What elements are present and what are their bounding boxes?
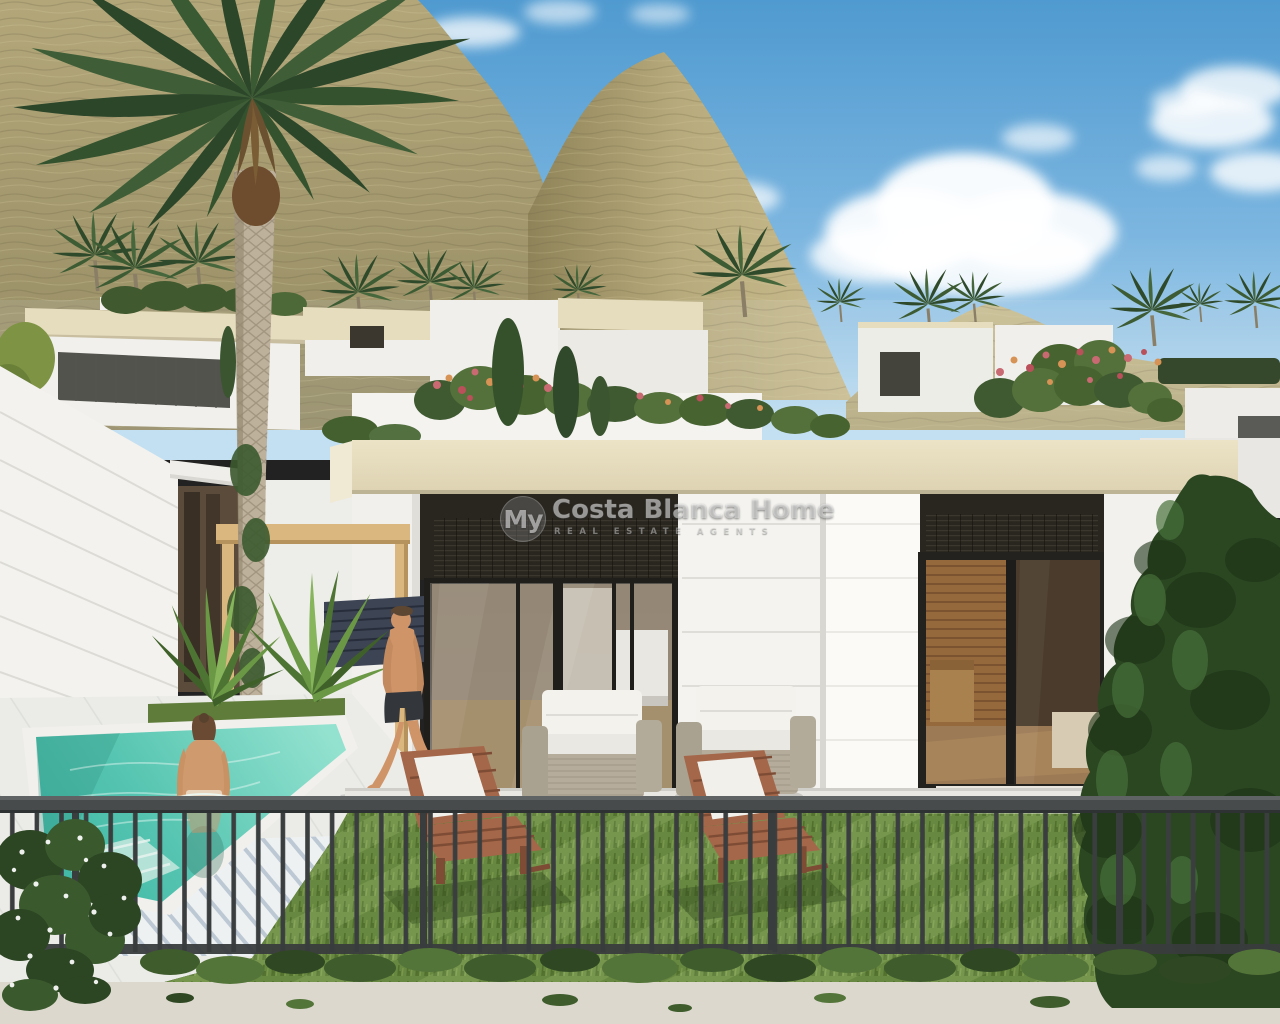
railing-fence [0, 796, 1280, 954]
right-door [918, 494, 1114, 798]
roller-blind-left [434, 518, 680, 580]
roof-fascia [352, 440, 1238, 494]
property-photo: My Costa Blanca Home REAL ESTATE AGENTS [0, 0, 1280, 1024]
scene-render [0, 0, 1280, 1024]
pavement [0, 982, 1280, 1024]
